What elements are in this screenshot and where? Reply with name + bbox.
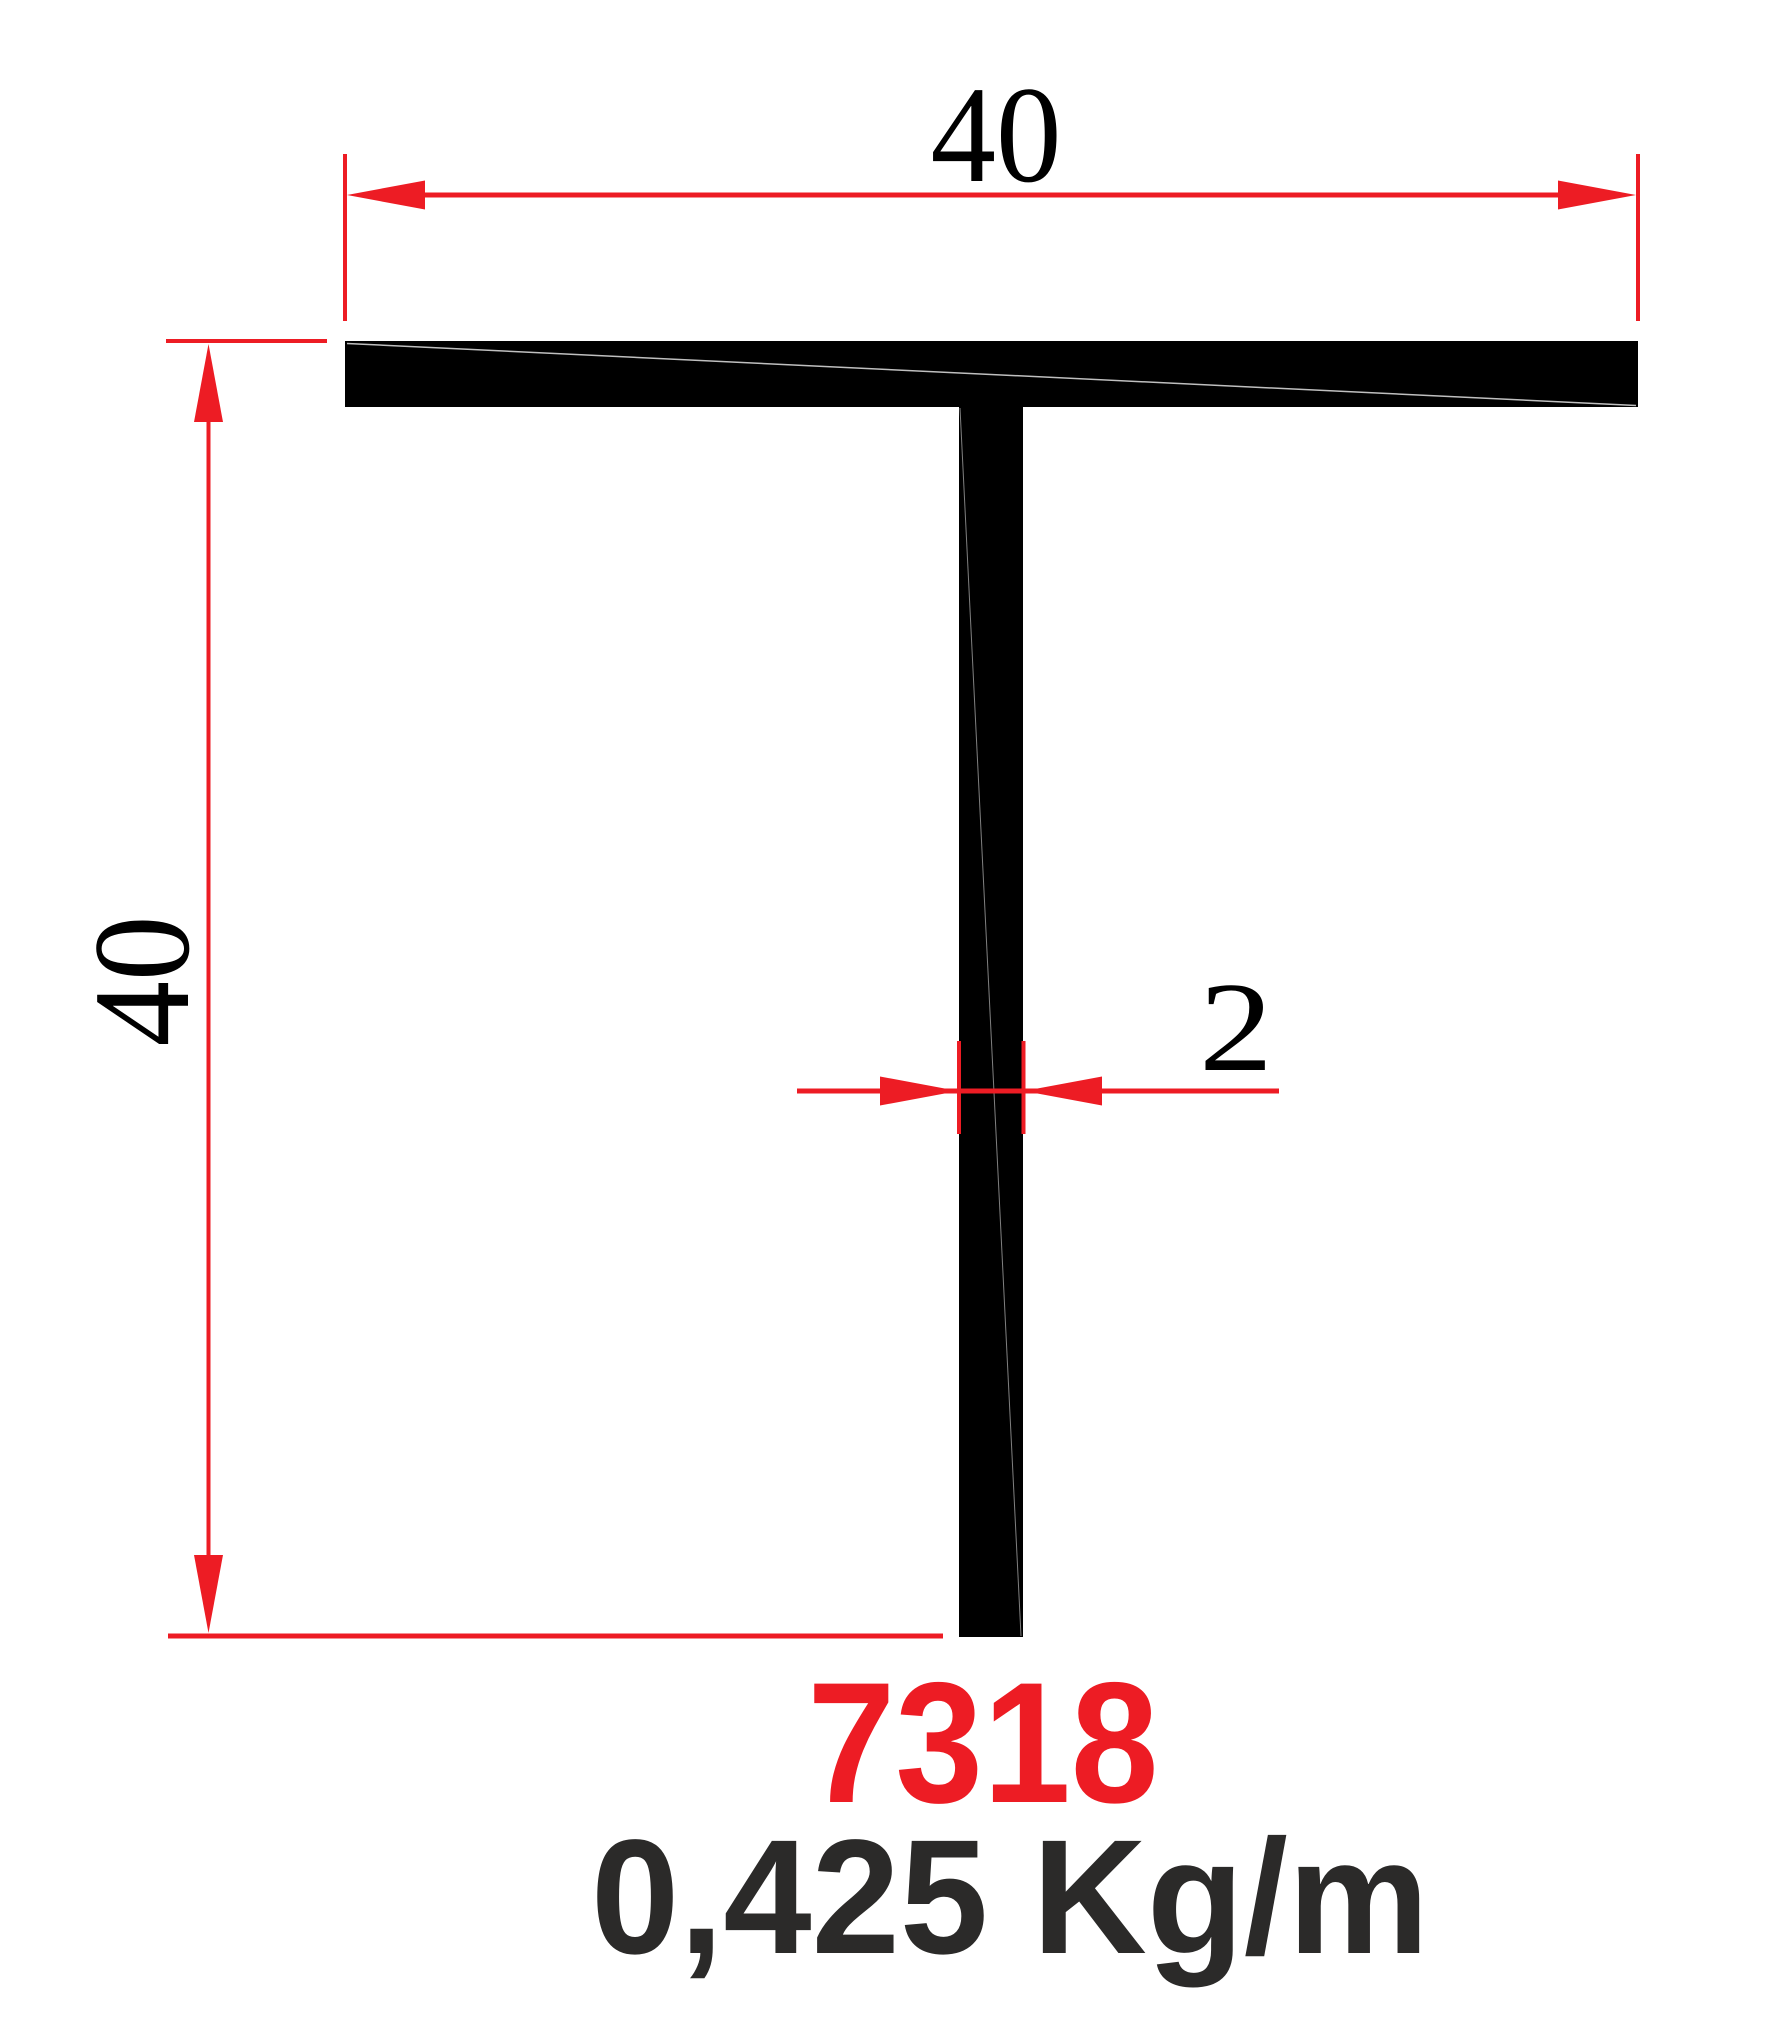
svg-text:40: 40 [931,58,1062,211]
svg-text:40: 40 [65,916,218,1047]
svg-text:0,425 Kg/m: 0,425 Kg/m [591,1805,1429,1988]
svg-text:2: 2 [1199,956,1273,1098]
